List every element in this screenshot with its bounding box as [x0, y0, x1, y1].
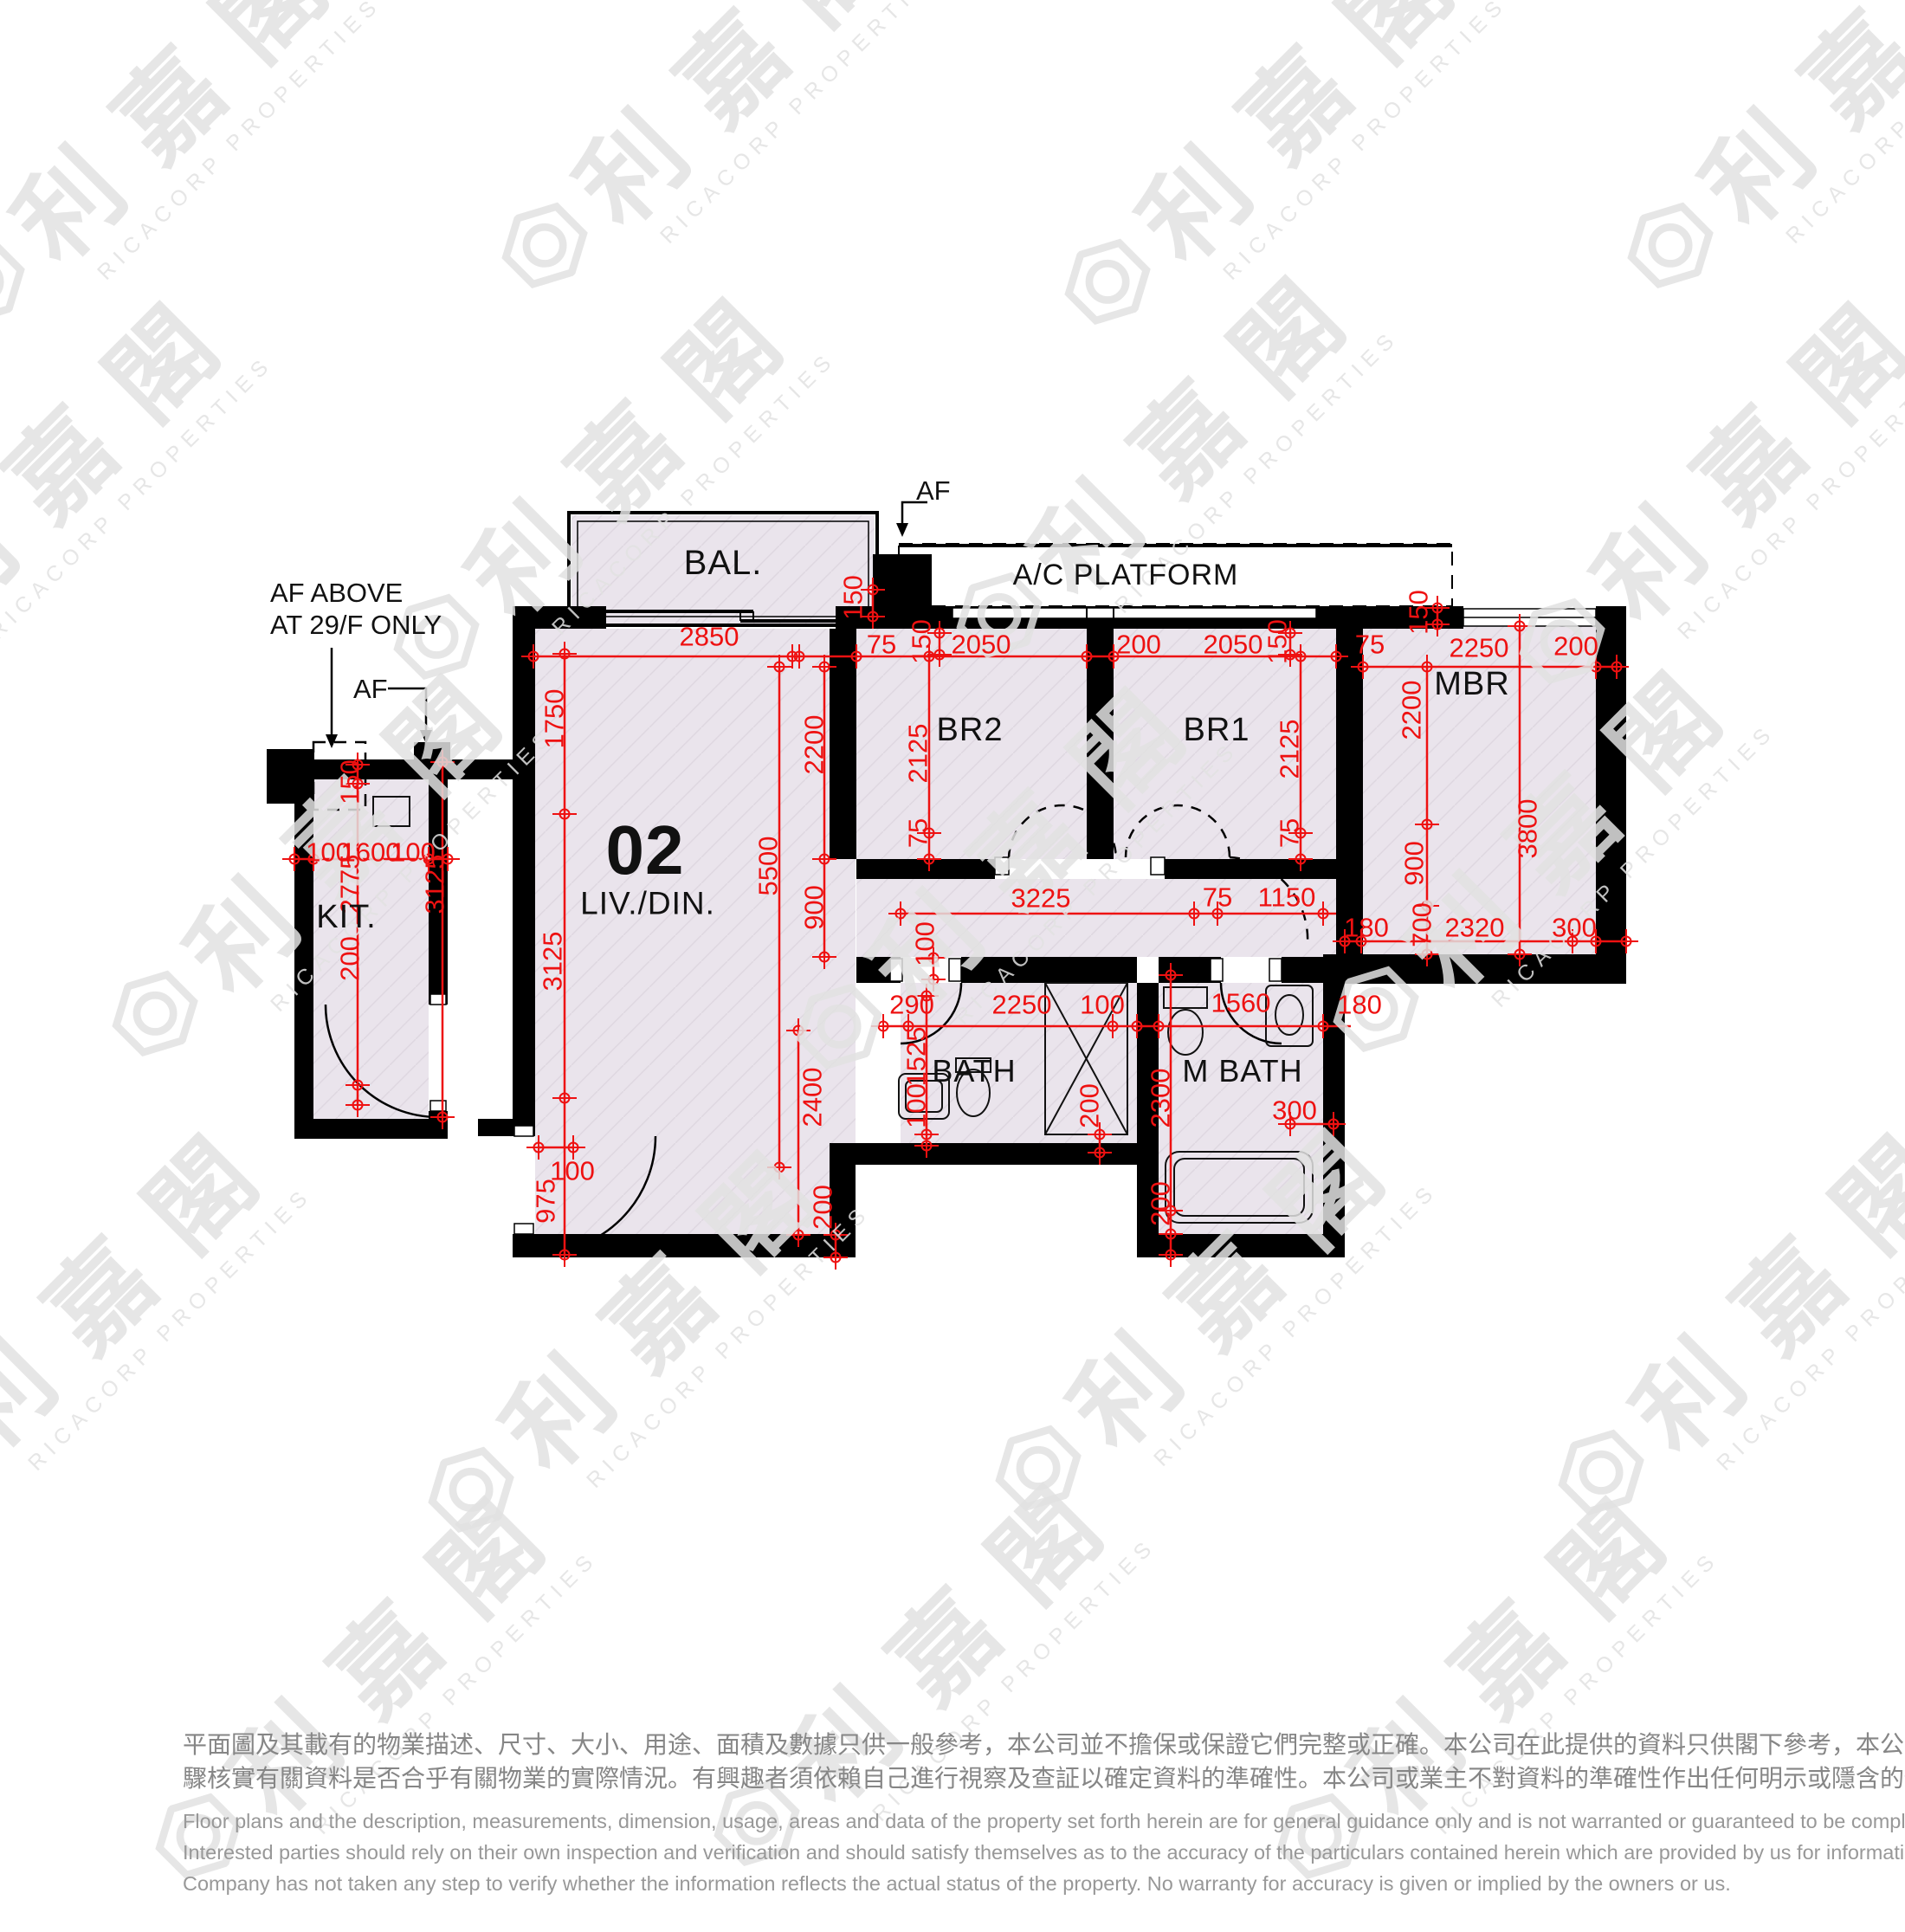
floor-plan-page: 利嘉閣RICACORP PROPERTIES利嘉閣RICACORP PROPER… — [0, 0, 1905, 1905]
disclaimer-zh-line2: 驟核實有關資料是否合乎有關物業的實際情況。有興趣者須依賴自己進行視察及查証以確定… — [183, 1761, 1741, 1795]
dimension-tick-marker — [871, 1014, 895, 1038]
af-left-label: AF — [353, 673, 388, 705]
floor-plan-drawing — [0, 0, 1905, 1905]
af-above-line2: AT 29/F ONLY — [270, 609, 442, 641]
af-above-line1: AF ABOVE — [270, 577, 442, 609]
af-top-label: AF — [916, 475, 951, 507]
ac-platform — [899, 544, 1452, 606]
disclaimer-en-line1: Floor plans and the description, measure… — [183, 1806, 1741, 1837]
disclaimer-en-line3: Company has not taken any step to verify… — [183, 1868, 1741, 1899]
disclaimer-zh-line1: 平面圖及其載有的物業描述、尺寸、大小、用途、面積及數據只供一般參考，本公司並不擔… — [183, 1728, 1741, 1761]
disclaimer-en-line2: Interested parties should rely on their … — [183, 1837, 1741, 1868]
af-above-note: AF ABOVE AT 29/F ONLY — [270, 577, 442, 641]
disclaimer-footer: 平面圖及其載有的物業描述、尺寸、大小、用途、面積及數據只供一般參考，本公司並不擔… — [183, 1728, 1741, 1899]
